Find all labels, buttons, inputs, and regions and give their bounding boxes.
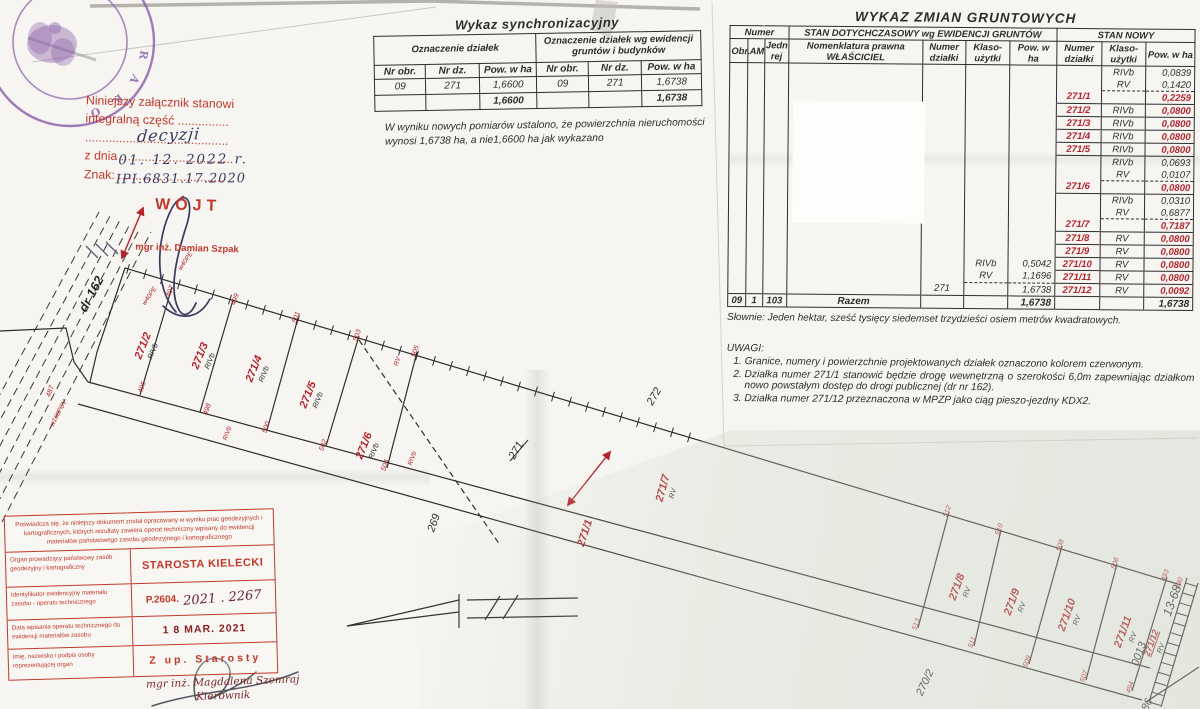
road-dr162 (0, 212, 151, 522)
sync-col: Nr obr. (537, 62, 589, 77)
changes-cell (763, 203, 787, 216)
changes-cell (963, 283, 1008, 296)
changes-cell (922, 102, 965, 115)
changes-cell (764, 88, 789, 101)
changes-cell: 0,0800 (1144, 258, 1193, 271)
changes-cell: 0,5042 (1008, 257, 1055, 270)
handwritten-date: 01. 12. 2022 r. (118, 149, 248, 170)
map-label: RV (667, 486, 679, 499)
changes-cell (922, 154, 965, 167)
changes-cell (1100, 219, 1145, 232)
changes-cell: 271/2 (1056, 103, 1101, 116)
date-stamp: 1 8 MAR. 2021 (163, 622, 247, 636)
changes-cell (762, 268, 787, 281)
amount-in-words: Słownie: Jeden hektar, sześć tysięcy sie… (727, 312, 1199, 327)
hatch-tick (1161, 662, 1173, 666)
hatch-tick (1185, 583, 1197, 587)
changes-cell (747, 153, 763, 166)
changes-cell: 0,0107 (1145, 169, 1194, 182)
changes-cell (728, 267, 746, 280)
changes-cell (921, 230, 964, 243)
hatch-tick (1179, 603, 1191, 607)
date-prefix: z dnia (84, 149, 117, 164)
map-label: 501 (291, 311, 302, 324)
changes-cell: 0,0800 (1145, 181, 1194, 194)
changes-cell: 0,0800 (1144, 271, 1193, 284)
changes-cell (763, 153, 787, 166)
changes-cell: RV (963, 270, 1008, 283)
road-symbol (347, 594, 578, 628)
changes-col: Numer działki (923, 40, 966, 64)
changes-cell (728, 215, 746, 228)
changes-cell (787, 255, 921, 269)
map-label: 495 (137, 381, 148, 394)
changes-cell: RIVb (1100, 156, 1145, 169)
sync-cell (426, 94, 480, 111)
sync-cell: 271 (588, 75, 642, 92)
hatch-tick (1182, 593, 1194, 597)
map-label: 271/1 (575, 518, 595, 549)
changes-cell: 0,2259 (1146, 91, 1195, 104)
seal-letter: A (127, 71, 143, 86)
hatch-tick (1152, 692, 1164, 696)
changes-cell (922, 141, 965, 154)
changes-cell: RV (1100, 245, 1145, 258)
changes-cell (728, 241, 746, 254)
changes-cell: 0,0800 (1145, 143, 1194, 156)
changes-cell (922, 115, 965, 128)
changes-cell (746, 229, 762, 242)
scanned-document: RAKO (0, 0, 1200, 709)
changes-cell (1057, 65, 1102, 78)
changes-cell: 271/11 (1055, 270, 1100, 283)
changes-cell (764, 75, 788, 88)
changes-cell (729, 190, 747, 203)
changes-cell (789, 63, 923, 77)
map-label: 487 (45, 384, 56, 398)
changes-cell (747, 216, 763, 229)
changes-cell (1009, 193, 1056, 206)
map-label: 270/2 (914, 668, 937, 699)
changes-cell: 1 (746, 294, 762, 307)
changes-cell: 103 (762, 294, 787, 307)
changes-cell (762, 281, 787, 294)
changes-cell: RIVb (1101, 66, 1146, 79)
sync-cell: 09 (537, 76, 589, 93)
changes-cell: RV (1101, 78, 1146, 91)
changes-cell (922, 167, 965, 180)
sync-col: Nr dz. (588, 61, 642, 76)
sync-cell: 09 (374, 78, 426, 95)
changes-cell (787, 281, 921, 295)
changes-cell (1056, 168, 1101, 181)
changes-cell (764, 63, 788, 76)
changes-cell (964, 193, 1009, 206)
cert-label: Data wpisania operatu technicznego do ew… (8, 618, 133, 649)
hatch-tick (1170, 633, 1182, 637)
map-label: 271 (506, 440, 526, 463)
attachment-note-stamp: Niniejszy załącznik stanowi integralną c… (82, 91, 296, 259)
changes-cell (1008, 218, 1055, 231)
hatch-tick (1155, 682, 1167, 686)
changes-cell (921, 256, 964, 269)
changes-cell: 271/1 (1056, 90, 1101, 103)
changes-cell (747, 140, 763, 153)
changes-cell (730, 75, 748, 88)
sync-table-sheet: Wykaz synchronizacyjny Oznaczenie działe… (371, 13, 705, 151)
changes-cell (787, 242, 921, 256)
map-label: 269 (425, 512, 443, 534)
changes-cell (763, 216, 788, 229)
changes-cell (1009, 180, 1056, 193)
changes-cell (1010, 65, 1057, 78)
changes-cell (921, 217, 964, 230)
sync-group-left: Oznaczenie działek (374, 34, 537, 66)
changes-cell (747, 114, 763, 127)
changes-cell (747, 178, 763, 191)
changes-cell (965, 116, 1010, 129)
changes-col: Jedn rej (764, 39, 789, 63)
changes-cell (763, 242, 788, 255)
changes-cell (963, 296, 1008, 309)
changes-cell (1100, 181, 1145, 194)
changes-cell: Razem (787, 294, 921, 308)
changes-cell: 271/5 (1056, 142, 1101, 155)
changes-cell (1010, 90, 1057, 103)
changes-cell: 0,0800 (1145, 130, 1194, 143)
cert-label: Identyfikator ewidencyjny materiału zaso… (7, 585, 132, 620)
changes-cell (729, 113, 747, 126)
changes-cell: 0,0839 (1146, 66, 1195, 79)
changes-cell (964, 205, 1009, 218)
seal-letter: R (136, 49, 151, 61)
remark-item: Działka numer 271/1 stanowić będzie drog… (744, 369, 1194, 395)
map-label: 502 (318, 439, 329, 452)
changes-cell (763, 140, 788, 153)
map-label: w160PCV (49, 398, 69, 427)
sync-cell (375, 94, 427, 111)
cert-row: Imię, nazwisko i podpis osoby reprezentu… (8, 643, 277, 680)
changes-cell (922, 89, 965, 102)
changes-cell: 0,0800 (1144, 232, 1193, 245)
changes-cell (729, 139, 747, 152)
changes-cell: RV (1100, 232, 1145, 245)
changes-cell (747, 203, 763, 216)
handwritten-znak: IPI.6831.17.2020 (116, 169, 246, 190)
redaction-box (792, 101, 925, 224)
changes-cell: RIVb (963, 257, 1008, 270)
remarks-block: UWAGI: Granice, numery i powierzchnie pr… (726, 343, 1195, 408)
changes-cell (729, 177, 747, 190)
changes-cell (748, 101, 764, 114)
changes-cell: 271/4 (1056, 129, 1101, 142)
changes-col: Pow. w ha (1146, 42, 1195, 66)
remark-item: Działka numer 271/12 przeznaczona w MPZP… (744, 393, 1194, 408)
changes-group-new: STAN NOWY (1057, 28, 1195, 43)
changes-cell: 271/7 (1055, 218, 1100, 231)
eagle-emblem-icon (27, 22, 77, 66)
changes-cell (746, 255, 762, 268)
map-label: RV (393, 355, 403, 366)
map-label: 503 (352, 329, 363, 342)
changes-cell (1055, 296, 1100, 309)
changes-cell (764, 114, 789, 127)
changes-cell (964, 218, 1009, 231)
changes-cell (1009, 167, 1056, 180)
changes-cell: 1,6738 (1008, 283, 1055, 296)
changes-cell (965, 103, 1010, 116)
sync-col: Pow. w ha (479, 63, 537, 78)
changes-cell: 0,1420 (1146, 79, 1195, 92)
changes-cell: 271/3 (1056, 116, 1101, 129)
changes-cell (964, 167, 1009, 180)
changes-cell (788, 75, 922, 89)
changes-cell (747, 127, 763, 140)
cert-label: Imię, nazwisko i podpis osoby reprezentu… (8, 647, 133, 680)
hatch-tick (1164, 652, 1176, 656)
changes-col: Klaso-użytki (1101, 42, 1146, 66)
sync-cell (589, 91, 643, 108)
changes-cell (1008, 231, 1055, 244)
changes-cell (747, 191, 763, 204)
changes-cell: 09 (728, 293, 746, 306)
changes-cell (1009, 155, 1056, 168)
changes-cell (746, 268, 762, 281)
changes-cell (763, 178, 788, 191)
changes-cell: 0,0092 (1144, 284, 1193, 297)
changes-col: Numer działki (1057, 42, 1102, 66)
changes-cell (762, 255, 787, 268)
changes-cell (763, 191, 787, 204)
changes-cell (748, 75, 764, 88)
changes-cell: 0,0693 (1145, 156, 1194, 169)
changes-cell (1055, 206, 1100, 219)
changes-col: Obr. (730, 39, 748, 63)
changes-group-numer: Numer (730, 25, 789, 39)
changes-cell: RIVb (1101, 130, 1146, 143)
starosta-kielecki: STAROSTA KIELECKI (142, 557, 264, 572)
changes-cell (921, 295, 964, 308)
sync-cell: 271 (426, 78, 480, 95)
map-label: 511 (967, 636, 977, 649)
changes-cell (965, 77, 1010, 90)
map-label: dr 162 (75, 273, 107, 315)
changes-cell (1009, 116, 1056, 129)
sync-col: Nr obr. (374, 64, 426, 79)
changes-cell (921, 269, 964, 282)
changes-cell (764, 101, 789, 114)
changes-cell: 271/6 (1056, 180, 1101, 193)
map-label: RIVb (222, 425, 234, 441)
cert-label: Organ prowadzący państwowy zasób geodezy… (6, 550, 131, 587)
map-label: RIVb (407, 450, 419, 466)
changes-cell: 1,1696 (1008, 270, 1055, 283)
sync-cell: 1,6600 (480, 93, 538, 110)
changes-cell (747, 165, 763, 178)
changes-cell: 271 (921, 282, 964, 295)
sync-cell: 1,6738 (642, 90, 702, 107)
changes-cell (1009, 142, 1056, 155)
map-label: 509 (1022, 655, 1033, 668)
changes-cell: RV (1100, 206, 1145, 219)
changes-cell: RIVb (1101, 104, 1146, 117)
sync-cell: 1,6600 (479, 77, 537, 94)
changes-cell: 271/10 (1055, 257, 1100, 270)
changes-cell (728, 203, 746, 216)
map-label: 499 (230, 293, 241, 306)
changes-cell (964, 180, 1009, 193)
changes-cell (748, 88, 764, 101)
changes-cell (964, 155, 1009, 168)
changes-cell (763, 165, 787, 178)
changes-cell (923, 64, 966, 77)
changes-table-title: WYKAZ ZMIAN GRUNTOWYCH (730, 8, 1200, 27)
changes-row: 091103Razem1,67381,6738 (728, 293, 1193, 310)
z-up-starosty: Z up. Starosty (149, 652, 261, 667)
changes-cell: RIVb (1101, 143, 1146, 156)
map-label: 506 (1110, 557, 1121, 570)
changes-cell (746, 242, 762, 255)
changes-cell (1010, 77, 1057, 90)
changes-cell: 271/9 (1055, 244, 1100, 257)
changes-cell (1101, 91, 1146, 104)
changes-cell: 0,6877 (1145, 207, 1194, 220)
changes-cell: 0,0310 (1145, 194, 1194, 207)
changes-cell (964, 142, 1009, 155)
map-label: 513 (911, 618, 922, 631)
changes-cell (921, 192, 964, 205)
hatch-tick (1176, 613, 1188, 617)
map-label: 510 (994, 523, 1005, 536)
changes-cell (1055, 193, 1100, 206)
changes-cell: 0,7187 (1144, 219, 1193, 232)
changes-col: Klaso-użytki (965, 41, 1010, 65)
changes-cell (921, 243, 964, 256)
changes-cell: 271/12 (1055, 283, 1100, 296)
changes-cell (964, 244, 1009, 257)
changes-cell (965, 129, 1010, 142)
changes-cell (748, 63, 764, 76)
changes-cell (787, 229, 921, 243)
changes-cell (1008, 244, 1055, 257)
hatch-tick (1167, 642, 1179, 646)
sync-table: Oznaczenie działek Oznaczenie działek wg… (373, 30, 702, 112)
changes-cell (729, 152, 747, 165)
map-label: 500 (261, 421, 272, 434)
changes-cell (728, 228, 746, 241)
changes-cell: 1,6738 (1144, 297, 1193, 310)
changes-cell (965, 65, 1010, 78)
changes-cell (1009, 103, 1056, 116)
changes-cell: 271/8 (1055, 231, 1100, 244)
changes-cell (964, 231, 1009, 244)
handwritten-decyzji: decyzji (136, 122, 201, 149)
changes-cell: 0,0800 (1145, 104, 1194, 117)
map-label: 494 (1125, 681, 1136, 694)
changes-cell (1099, 297, 1144, 310)
wojt-title: WÓJT (83, 191, 294, 220)
changes-cell (1009, 129, 1056, 142)
changes-col: AM (748, 39, 764, 63)
hatch-tick (1158, 672, 1170, 676)
map-label: w40PE (141, 285, 159, 306)
changes-cell (746, 281, 762, 294)
changes-cell (922, 128, 965, 141)
changes-cell (965, 90, 1010, 103)
changes-cell (922, 179, 965, 192)
changes-cell: 0,0800 (1144, 245, 1193, 258)
changes-cell: RV (1099, 271, 1144, 284)
changes-cell (729, 100, 747, 113)
changes-cell (763, 229, 788, 242)
changes-cell (1056, 78, 1101, 91)
map-label: 498 (202, 403, 213, 416)
changes-cell (922, 77, 965, 90)
changes-cell: 1,6738 (1008, 296, 1055, 309)
changes-cell (1009, 205, 1056, 218)
changes-cell (729, 87, 747, 100)
changes-cell: RV (1100, 168, 1145, 181)
hatch-tick (1173, 623, 1185, 627)
map-label: 272 (644, 386, 664, 409)
changes-cell (921, 205, 964, 218)
sync-group-right: Oznaczenie działek wg ewidencji gruntów … (536, 31, 701, 63)
changes-cell (728, 254, 746, 267)
changes-cell (728, 280, 746, 293)
sync-cell: 1,6738 (642, 74, 702, 91)
changes-cell (787, 268, 921, 282)
changes-table-sheet: WYKAZ ZMIAN GRUNTOWYCH Numer STAN DOTYCH… (726, 8, 1200, 410)
handwritten-operat-id: 2021 . 2267 (182, 587, 262, 608)
sync-note: W wyniku nowych pomiarów ustalono, że po… (385, 116, 705, 150)
changes-cell (729, 126, 747, 139)
changes-col: Nomenklatura prawna WŁAŚCICIEL (789, 39, 923, 64)
changes-cell: RV (1099, 258, 1144, 271)
changes-cell (1056, 155, 1101, 168)
changes-cell: RV (1099, 284, 1144, 297)
sync-col: Pow. w ha (641, 60, 701, 75)
changes-col: Pow. w ha (1010, 41, 1057, 65)
changes-cell (764, 127, 789, 140)
changes-cell: RIVb (1100, 194, 1145, 207)
sync-col: Nr dz. (426, 64, 480, 79)
changes-cell: RIVb (1101, 117, 1146, 130)
map-label: 493 (1160, 569, 1171, 582)
changes-cell (729, 165, 747, 178)
changes-cell (730, 62, 748, 75)
certification-stamp: Poświadcza się, że niniejszy dokument zo… (4, 508, 279, 681)
operat-id-prefix: P.2604. (146, 594, 179, 606)
sync-cell (537, 92, 589, 109)
changes-cell: 0,0800 (1145, 117, 1194, 130)
znak-prefix: Znak: (84, 167, 115, 182)
